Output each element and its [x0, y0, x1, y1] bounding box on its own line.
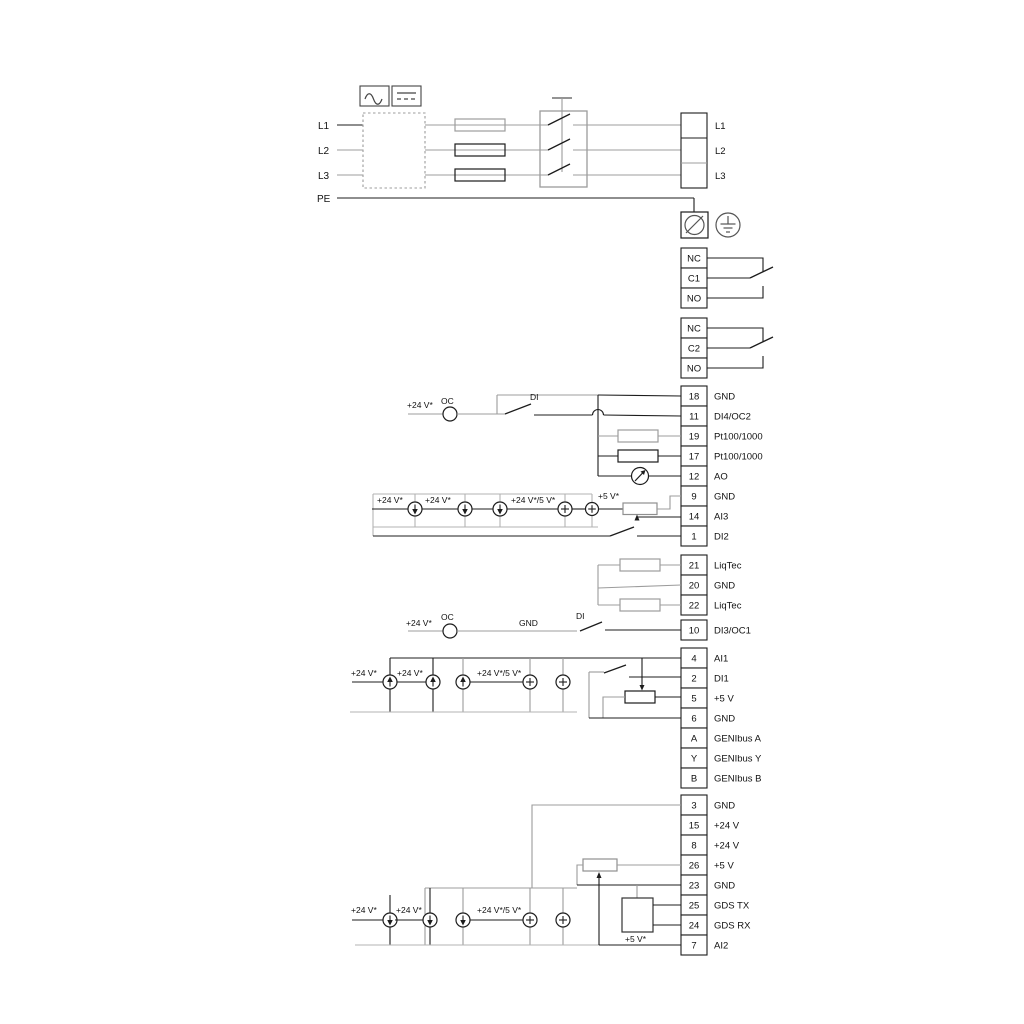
terminal-label: DI3/OC1: [714, 626, 751, 637]
open-collector-icon: [443, 407, 457, 421]
terminal-label: GND: [714, 801, 735, 812]
gnd-label: GND: [519, 618, 538, 628]
ao-meter-icon: [632, 468, 649, 485]
plus24v-label: +24 V*: [351, 668, 377, 678]
terminal-number: 23: [689, 881, 700, 892]
liqtec-resistor: [620, 599, 660, 611]
terminal-number: 6: [691, 714, 696, 725]
current-source-icon: [456, 913, 470, 927]
terminal-label: GDS RX: [714, 921, 751, 932]
oc-label: OC: [441, 612, 454, 622]
di-label: DI: [530, 392, 539, 402]
current-source-icon: [456, 675, 470, 689]
di-switch: [580, 622, 602, 631]
terminal-number: 18: [689, 392, 700, 403]
potentiometer: [623, 503, 657, 515]
io-group-a: 18 11 19 17 12 9 14 1 GND DI4/OC2 Pt100/…: [372, 386, 763, 546]
terminal-number: 7: [691, 941, 696, 952]
terminal-label: GENIbus A: [714, 734, 762, 745]
relay1-terminal-no: NO: [687, 294, 701, 305]
terminal-label: Pt100/1000: [714, 452, 763, 463]
terminal-label: GND: [714, 492, 735, 503]
relay2-contact: [707, 328, 773, 368]
terminal-label: GND: [714, 714, 735, 725]
voltage-source-icon: [556, 913, 570, 927]
terminal-number: 26: [689, 861, 700, 872]
wiring-diagram-svg: L1 L2 L3 PE: [0, 0, 1024, 1024]
terminal-number: 3: [691, 801, 696, 812]
current-source-icon: [383, 913, 397, 927]
pt100-resistor: [618, 450, 658, 462]
terminal-label: LiqTec: [714, 601, 742, 612]
plus24v-label: +24 V*: [425, 495, 451, 505]
ai2-sensor-alternatives: +24 V* +24 V* +24 V*/5 V*: [351, 888, 599, 945]
terminal-number: 14: [689, 512, 700, 523]
terminal-number: 4: [691, 654, 696, 665]
terminal-number: 9: [691, 492, 696, 503]
power-section: L1 L2 L3 PE: [317, 86, 740, 238]
main-switch: [540, 98, 587, 187]
di-switch: [610, 527, 634, 536]
relay2-terminal-c2: C2: [688, 344, 700, 355]
plus24v-label: +24 V*: [406, 618, 432, 628]
liqtec-resistor: [620, 559, 660, 571]
power-label-l2-right: L2: [715, 146, 726, 157]
di-label: DI: [576, 611, 585, 621]
terminal-label: +24 V: [714, 841, 740, 852]
terminal-label: DI2: [714, 532, 729, 543]
plus24v-5v-label: +24 V*/5 V*: [511, 495, 556, 505]
terminal-label: GDS TX: [714, 901, 750, 912]
dc-symbol: [392, 86, 421, 106]
relay2-block: NC C2 NO: [681, 318, 773, 378]
current-source-icon: [408, 502, 422, 516]
mains-terminal-block: [681, 113, 707, 188]
ac-symbol: [360, 86, 389, 106]
voltage-source-icon: [558, 502, 572, 516]
plus5v-label: +5 V*: [625, 934, 647, 944]
di-switch: [505, 404, 531, 414]
terminal-number: B: [691, 774, 697, 785]
relay2-terminal-no: NO: [687, 364, 701, 375]
relay1-block: NC C1 NO: [681, 248, 773, 308]
voltage-source-icon: [556, 675, 570, 689]
terminal-label: GND: [714, 581, 735, 592]
power-label-l1-left: L1: [318, 121, 330, 132]
rfi-filter-box: [363, 113, 425, 188]
potentiometer: [625, 691, 655, 703]
terminal-number: 21: [689, 561, 700, 572]
open-collector-icon: [443, 624, 457, 638]
plus24v-label: +24 V*: [396, 905, 422, 915]
relay1-terminal-c1: C1: [688, 274, 700, 285]
terminal-label: DI1: [714, 674, 729, 685]
voltage-source-icon: [523, 913, 537, 927]
terminal-number: 24: [689, 921, 700, 932]
terminal-number: 19: [689, 432, 700, 443]
terminal-label: +5 V: [714, 861, 734, 872]
oc-label: OC: [441, 396, 454, 406]
plus24v-label: +24 V*: [351, 905, 377, 915]
wiring-diagram: L1 L2 L3 PE: [0, 0, 1024, 1024]
power-label-l2-left: L2: [318, 146, 330, 157]
terminal-number: 1: [691, 532, 696, 543]
ai3-sensor-alternatives: +24 V* +24 V* +24 V*/5 V*: [372, 491, 681, 536]
terminal-number: 11: [689, 412, 699, 423]
pe-terminal: [681, 212, 708, 238]
io-group-c: 3 15 8 26 23 25 24 7 GND +24 V +24 V +5 …: [351, 795, 751, 955]
power-label-l1-right: L1: [715, 121, 726, 132]
terminal-label: GND: [714, 392, 735, 403]
power-label-l3-right: L3: [715, 171, 726, 182]
wiper-arrow: [640, 685, 645, 691]
terminal-number: 15: [689, 821, 700, 832]
plus24v-5v-label: +24 V*/5 V*: [477, 905, 522, 915]
wiper-arrow: [597, 872, 602, 878]
terminal-number: 8: [691, 841, 696, 852]
power-label-l3-left: L3: [318, 171, 330, 182]
di-switch: [604, 665, 626, 673]
terminal-number: 17: [689, 452, 700, 463]
plus5v-label: +5 V*: [598, 491, 620, 501]
current-source-icon: [493, 502, 507, 516]
plus24v-label: +24 V*: [407, 400, 433, 410]
terminal-number: 20: [689, 581, 700, 592]
plus24v-label: +24 V*: [377, 495, 403, 505]
terminal-label: AI2: [714, 941, 728, 952]
relay1-contact: [707, 258, 773, 298]
plus24v-label: +24 V*: [397, 668, 423, 678]
ground-icon: [716, 213, 740, 237]
potentiometer: [583, 859, 617, 871]
terminal-number: Y: [691, 754, 698, 765]
terminal-number: A: [691, 734, 698, 745]
terminal-number: 25: [689, 901, 700, 912]
current-source-icon: [383, 675, 397, 689]
voltage-source-icon: [586, 503, 599, 516]
terminal-label: AO: [714, 472, 728, 483]
terminal-number: 12: [689, 472, 700, 483]
plus24v-5v-label: +24 V*/5 V*: [477, 668, 522, 678]
voltage-source-icon: [523, 675, 537, 689]
relay1-terminal-nc: NC: [687, 254, 701, 265]
terminal-label: +24 V: [714, 821, 740, 832]
current-source-icon: [423, 913, 437, 927]
terminal-label: GENIbus B: [714, 774, 762, 785]
power-label-pe: PE: [317, 194, 331, 205]
terminal-label: DI4/OC2: [714, 412, 751, 423]
ai1-pot-di1: [589, 658, 681, 718]
terminal-number: 10: [689, 626, 700, 637]
ai1-sensor-alternatives: +24 V* +24 V* +24 V*/5 V*: [350, 658, 681, 712]
terminal-label: GENIbus Y: [714, 754, 762, 765]
terminal-label: Pt100/1000: [714, 432, 763, 443]
terminal-number: 5: [691, 694, 696, 705]
pt100-resistor: [618, 430, 658, 442]
io-group-b: 10 4 2 5 6 A Y B DI3/OC1 AI1 DI1 +5 V GN…: [350, 611, 762, 788]
relay2-terminal-nc: NC: [687, 324, 701, 335]
current-source-icon: [426, 675, 440, 689]
terminal-label: AI3: [714, 512, 728, 523]
gds-sensor-box: +5 V*: [622, 885, 681, 944]
terminal-number: 2: [691, 674, 696, 685]
terminal-label: GND: [714, 881, 735, 892]
terminal-label: LiqTec: [714, 561, 742, 572]
liqtec-group: 21 20 22 LiqTec GND LiqTec: [598, 555, 742, 615]
current-source-icon: [458, 502, 472, 516]
terminal-number: 22: [689, 601, 700, 612]
terminal-label: AI1: [714, 654, 728, 665]
terminal-label: +5 V: [714, 694, 734, 705]
